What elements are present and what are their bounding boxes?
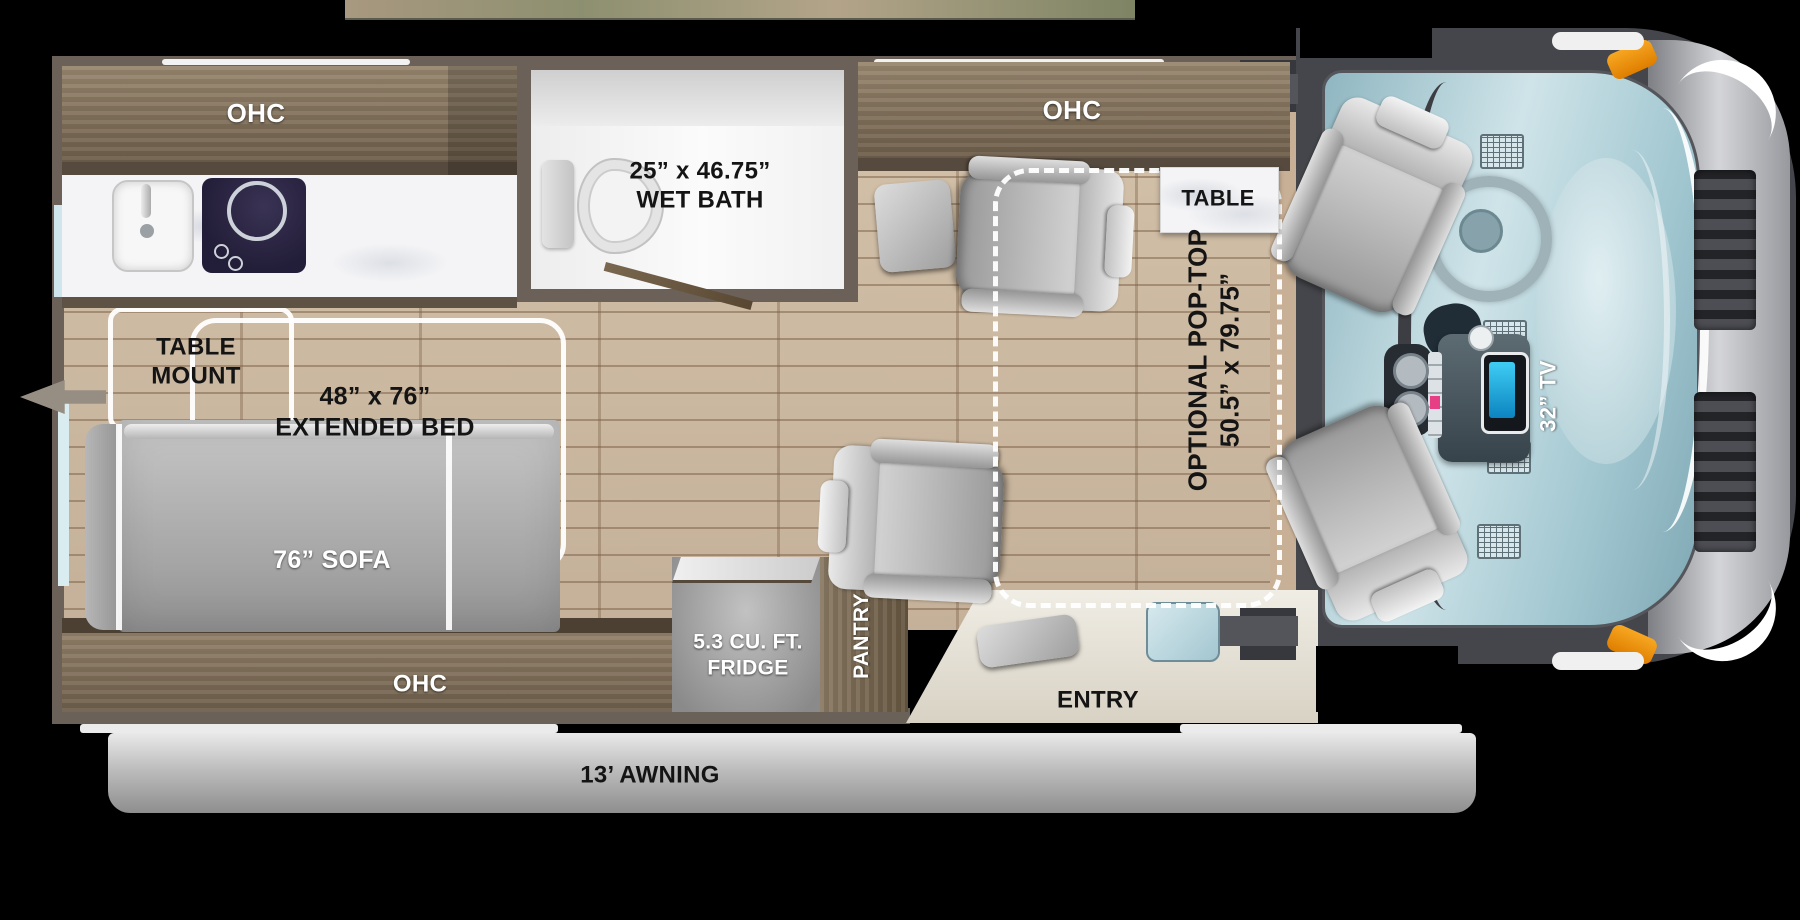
console-knob-icon [1468,325,1494,351]
drain-icon [140,224,154,238]
sink-icon [112,180,194,272]
cooktop-knob2-icon [228,256,243,271]
fridge-label: 5.3 CU. FT. FRIDGE [693,629,803,680]
pop-top-name: OPTIONAL POP-TOP [1182,229,1214,491]
pop-top-dimensions: 50.5” x 79.75” [1214,229,1246,491]
bed-dimensions: 48” x 76” [275,382,474,413]
steering-hub-icon [1459,209,1503,253]
sofa-label: 76” SOFA [273,545,391,576]
dinette-ohc-label: OHC [1043,95,1102,127]
hood-highlight-2 [1594,150,1670,490]
kitchen-endcap [448,66,517,175]
table-mount-label: TABLE MOUNT [151,333,240,392]
rv-floorplan: 13’ AWNING OHC 25” x 46.75” WET BATH OHC… [0,0,1800,920]
fridge-name: FRIDGE [693,655,803,681]
mirror-arm-bottom [1216,616,1298,646]
extended-bed-label: 48” x 76” EXTENDED BED [275,382,474,443]
grille-upper-icon [1694,170,1756,330]
lounge-seat-rear [827,441,1013,600]
faucet-icon [141,184,151,218]
table-label: TABLE [1181,186,1254,213]
wall-highlight-top-left [162,59,410,65]
wet-bath-shower-band [531,70,844,126]
cup-hole-1 [1393,353,1429,389]
console-button-pink [1430,396,1440,409]
cooktop-burner-icon [227,181,287,241]
wet-bath-name: WET BATH [629,186,770,215]
window-strip-lower [58,402,69,586]
kitchen-ohc-label: OHC [227,98,286,130]
cooktop-knob-icon [214,244,229,259]
entry-label: ENTRY [1057,685,1139,714]
seat-cushion [874,453,1005,591]
bed-name: EXTENDED BED [275,412,474,443]
fridge-capacity: 5.3 CU. FT. [693,629,803,655]
sofa-body [118,420,560,632]
wall-highlight-bottom-right [1180,724,1462,733]
awning [108,733,1476,813]
tv-label: 32” TV [1536,360,1563,432]
dash-vent-4-icon [1477,524,1521,559]
sofa-fold-line-right [446,424,452,630]
pop-top-label: OPTIONAL POP-TOP 50.5” x 79.75” [1182,229,1245,491]
tv-screen [1489,362,1515,418]
seat-headrest [817,480,849,553]
wall-highlight-bottom-left [80,724,558,733]
dash-vent-1-icon [1480,134,1524,169]
roof-mask-bottom [1316,646,1458,712]
fridge-top-slab [672,557,820,583]
galley-ohc-label: OHC [393,669,447,698]
grille-lower-icon [1694,392,1756,552]
roof-mask-top [1300,22,1432,58]
awning-label: 13’ AWNING [580,760,719,789]
table-mount-line1: TABLE [151,333,240,362]
kitchen-counter-edge [62,297,517,308]
wet-bath-label: 25” x 46.75” WET BATH [629,157,770,216]
pantry-label: PANTRY [849,593,875,679]
table-mount-line2: MOUNT [151,362,240,391]
roof-rail-top [1552,32,1644,50]
sofa-fold-line-left [116,424,122,630]
console-buttons [1428,352,1442,438]
roof-accessory-strip [345,0,1135,20]
side-mirror-bottom-icon [1146,602,1220,662]
lounge-ottoman-front [873,179,956,273]
toilet-tank-icon [542,160,574,248]
roof-rail-bottom [1552,652,1644,670]
wet-bath-dimensions: 25” x 46.75” [629,157,770,186]
